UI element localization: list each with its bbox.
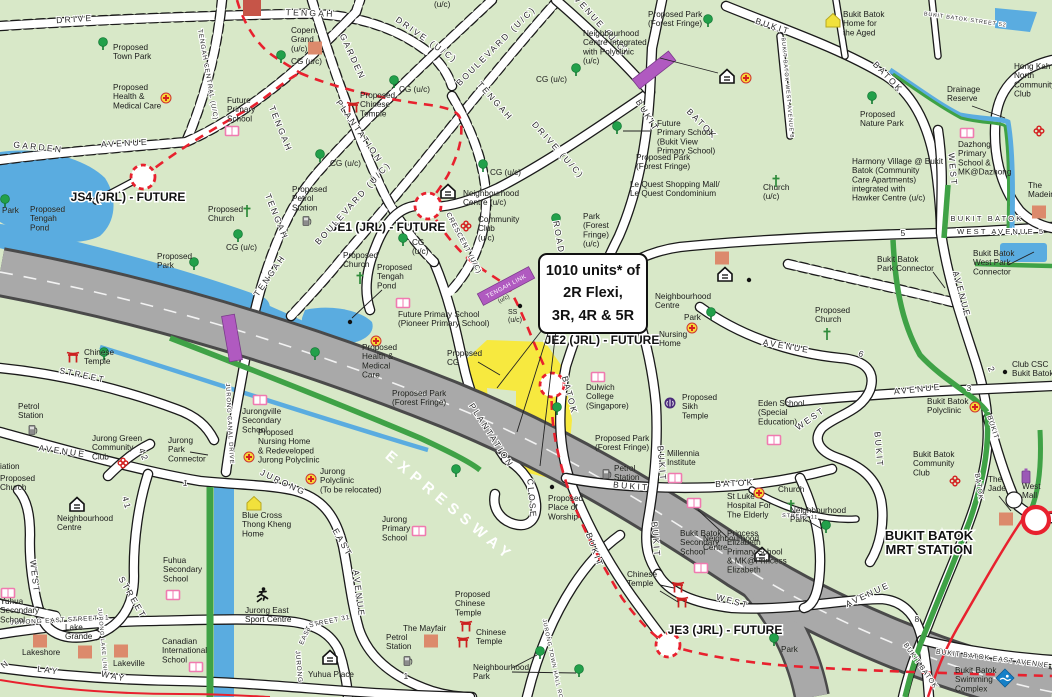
book-icon [961,129,974,138]
poi-label: CG (u/c) [490,168,521,177]
poi-label: CG (u/c) [330,159,361,168]
clinic-icon [741,73,751,83]
sqred-icon [243,0,261,16]
poi-label: Proposed Park(Forest Fringe) [392,389,447,407]
poi-label: ChineseTemple [476,628,506,646]
clinic-icon [687,323,697,333]
clinic-icon [161,93,171,103]
dot-icon [550,485,554,489]
callout-line-3: 3R, 4R & 5R [540,305,646,327]
callout-line-1: 1010 units* of [540,260,646,282]
mrt-station-label: BUKIT BATOKMRT STATION [885,528,974,557]
book-icon [695,564,708,573]
poi-label: (u/c) [434,0,451,9]
dot-icon [747,278,751,282]
jrl-station-label-je3: JE3 (JRL) - FUTURE [668,623,783,637]
road-label: BUKIT BATOK [951,214,1024,223]
poi-label: CG (u/c) [536,75,567,84]
poi-label: Lakeville [113,659,145,668]
dot-icon [348,320,352,324]
road-label: TENGAH [285,7,334,19]
sikh-icon [665,398,676,409]
dot-icon [1003,370,1007,374]
square-icon [715,252,729,265]
poi-label: ChineseTemple [627,570,657,588]
jrl-station-je1 [415,193,441,219]
jrl-station-js4 [131,165,155,189]
map-svg: EXPRESSWAY TENGAH LINK(u/c) JS4 (JRL) - … [0,0,1052,697]
road-label: 5 [1039,227,1045,236]
units-callout: 1010 units* of 2R Flexi, 3R, 4R & 5R [538,253,648,334]
jrl-station-label-je1: JE1 (JRL) - FUTURE [331,220,446,234]
jrl-station-label-je2: JE2 (JRL) - FUTURE [545,333,660,347]
poi-label: Park [2,206,20,215]
clinic-icon [970,402,980,412]
square-icon [78,646,92,659]
book-icon [190,663,203,672]
road-label: WEST AVENUE [957,227,1035,236]
poi-label: Proposed Park(Forest Fringe) [636,153,691,171]
book-icon [413,527,426,536]
poi-label: Club CSCBukit Batok [1012,360,1052,378]
poi-label: Proposed Park(Forest Fringe) [648,10,703,28]
callout-line-2: 2R Flexi, [540,282,646,304]
square-icon [114,645,128,658]
poi-label: Bukit BatokWest ParkConnector [973,249,1015,276]
poi-label: ProposedTown Park [113,43,152,61]
jrl-station-label-js4: JS4 (JRL) - FUTURE [71,190,186,204]
poi-label: DrainageReserve [947,85,981,103]
square-icon [424,635,438,648]
book-icon [688,499,701,508]
poi-label: CG (u/c) [291,57,322,66]
clinic-icon [306,474,316,484]
mrt-station-marker [1023,507,1049,533]
book-icon [397,299,410,308]
book-icon [592,373,605,382]
poi-label: Park [781,645,799,654]
mall-icon [1022,469,1030,484]
square-icon [999,513,1013,526]
poi-label: CG (u/c) [399,85,430,94]
poi-label: JurongPrimarySchool [382,515,411,542]
book-icon [768,436,781,445]
poi-label: Church [778,485,805,494]
book-icon [226,127,239,136]
road-label: 1 [404,671,411,681]
poi-label: Proposed Park(Forest Fringe) [595,434,650,452]
poi-label: Le Quest Shopping Mall/Le Quest Condomin… [630,180,720,198]
poi-label: Park [684,313,702,322]
poi-label: The Mayfair [403,624,446,633]
book-icon [669,474,682,483]
poi-label: Future Primary School(Pioneer Primary Sc… [398,310,490,328]
poi-label: Yuhua Place [308,670,354,679]
road-label: 5 [901,228,908,238]
clinic-icon [244,452,254,462]
road-label: 8 [915,614,922,624]
book-icon [167,591,180,600]
map-canvas: EXPRESSWAY TENGAH LINK(u/c) JS4 (JRL) - … [0,0,1052,697]
road-label: 3 [967,383,974,393]
clinic-icon [754,488,764,498]
book-icon [254,396,267,405]
square-icon [1032,206,1046,219]
road-loop [1006,492,1022,508]
dot-icon [518,304,522,308]
poi-label: Jurong EastSport Centre [245,606,292,624]
poi-label: CG (u/c) [226,243,257,252]
poi-label: ChineseTemple [84,348,114,366]
poi-label: Lakeshore [22,648,61,657]
road-label: BATOK [715,477,755,489]
poi-label: MillenniaInstitute [667,449,700,467]
square-icon [33,635,47,648]
poi-label: iation [0,462,20,471]
